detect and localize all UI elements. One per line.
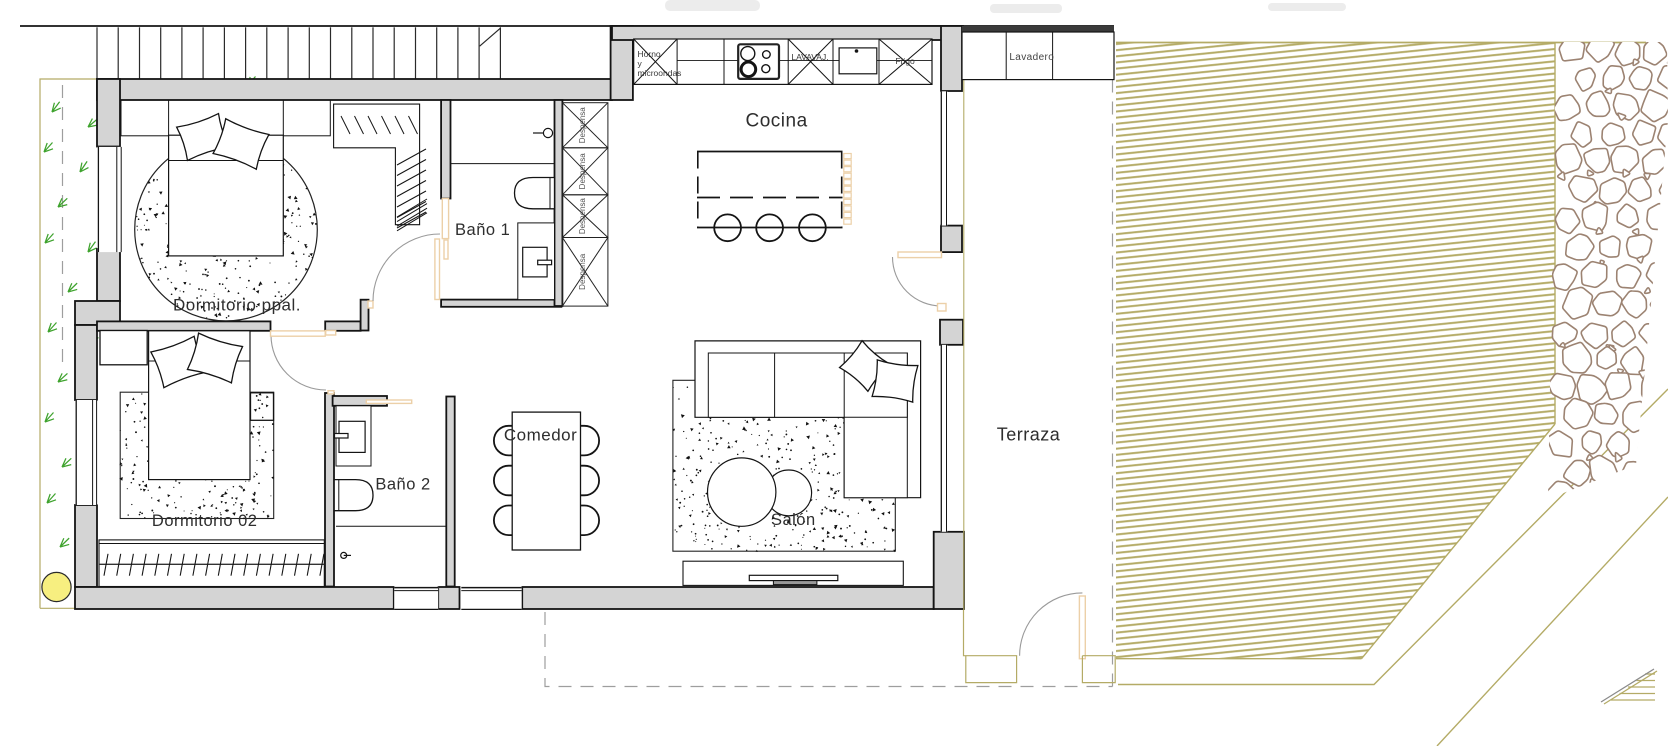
svg-text:Lavadero: Lavadero: [1009, 52, 1054, 63]
svg-text:Baño 1: Baño 1: [455, 221, 510, 239]
svg-text:Despensa: Despensa: [578, 153, 587, 190]
svg-text:Salón: Salón: [771, 511, 816, 529]
svg-text:Dormitorio 02: Dormitorio 02: [152, 512, 258, 530]
svg-text:Horno: Horno: [638, 49, 661, 59]
svg-text:Despensa: Despensa: [578, 198, 587, 235]
svg-text:Despensa: Despensa: [578, 107, 587, 144]
svg-text:microondas: microondas: [638, 68, 682, 78]
svg-text:Cocina: Cocina: [746, 111, 808, 132]
svg-text:Despensa: Despensa: [578, 253, 587, 290]
svg-text:LAVAVAJ.: LAVAVAJ.: [791, 52, 828, 62]
svg-text:Frigo: Frigo: [895, 56, 915, 66]
svg-text:Terraza: Terraza: [997, 425, 1061, 445]
svg-text:Comedor: Comedor: [504, 426, 577, 445]
svg-text:Baño 2: Baño 2: [375, 476, 430, 494]
svg-text:Dormitorio ppal.: Dormitorio ppal.: [173, 296, 301, 315]
